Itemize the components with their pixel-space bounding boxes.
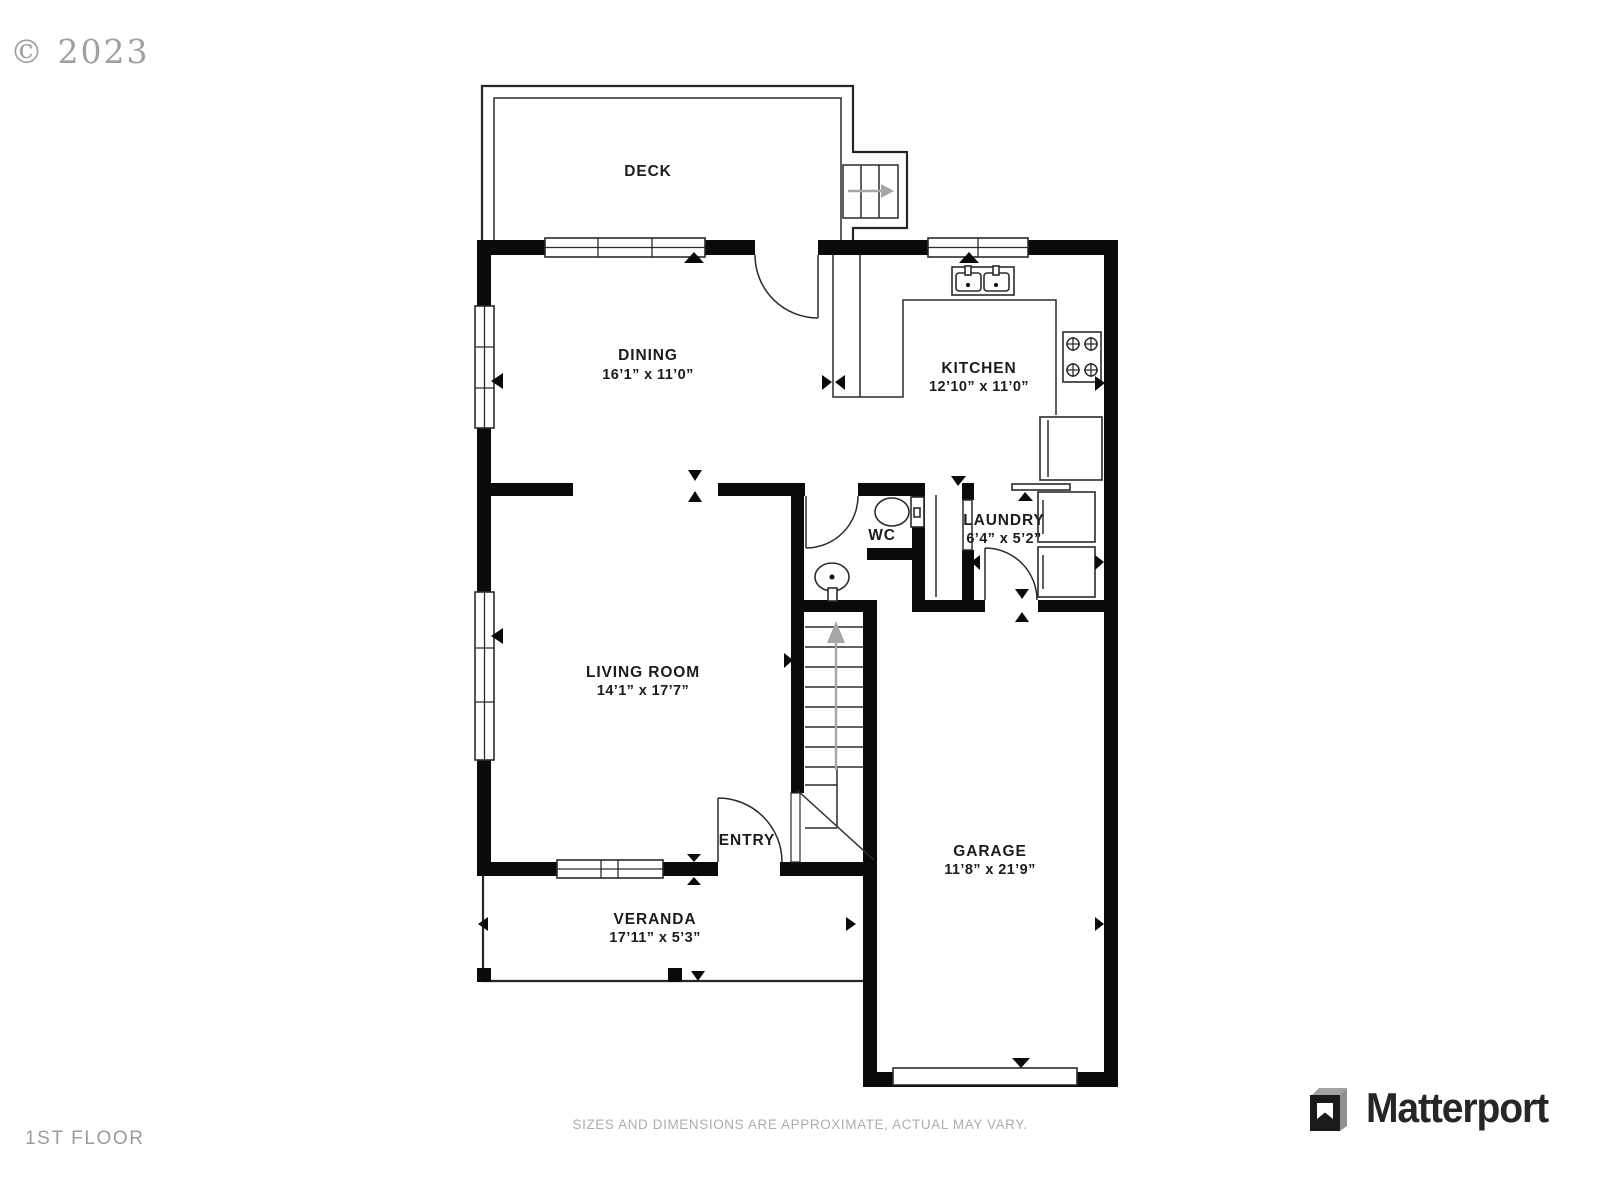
laundry-fixtures [1038, 492, 1095, 597]
matterport-logo: Matterport [1303, 1082, 1562, 1134]
wc-door [806, 496, 858, 548]
room-label-wc: WC [868, 527, 896, 544]
room-label-dining: DINING [618, 347, 678, 364]
entry-door [718, 798, 782, 862]
toilet [875, 497, 924, 527]
stair-railing [791, 793, 800, 862]
disclaimer-text: SIZES AND DIMENSIONS ARE APPROXIMATE, AC… [572, 1117, 1027, 1132]
walls [477, 240, 1118, 1087]
room-label-living-room: LIVING ROOM [586, 664, 700, 681]
room-dims-kitchen: 12’10” x 11’0” [929, 379, 1029, 395]
veranda-post [477, 968, 491, 982]
window-dining-top [545, 238, 705, 257]
counter-shelf [1012, 484, 1070, 490]
deck-door [755, 255, 818, 318]
floorplan-page: © 2023 [0, 0, 1600, 1200]
room-label-veranda: VERANDA [614, 911, 697, 928]
room-label-kitchen: KITCHEN [941, 360, 1016, 377]
floor-label: 1ST FLOOR [25, 1128, 145, 1150]
window-living-bottom [557, 860, 663, 878]
washer [1038, 492, 1095, 542]
stove [1063, 332, 1101, 382]
room-dims-living-room: 14’1” x 17’7” [597, 683, 689, 699]
laundry-door [985, 548, 1037, 600]
kitchen-sink [952, 266, 1014, 295]
room-dims-garage: 11’8” x 21’9” [944, 862, 1035, 878]
room-dims-dining: 16’1” x 11’0” [602, 367, 693, 383]
window-living-left [475, 592, 494, 760]
deck-outline [482, 86, 907, 240]
room-dims-veranda: 17’11” x 5’3” [609, 930, 700, 946]
window-dining-left [475, 306, 494, 428]
floorplan-drawing: DECK DINING 16’1” x 11’0” KITCHEN 12’10”… [0, 0, 1600, 1200]
veranda-post [668, 968, 682, 982]
window-kitchen-top [928, 238, 1028, 257]
matterport-wordmark: Matterport [1366, 1084, 1548, 1132]
matterport-icon [1303, 1083, 1353, 1133]
room-label-deck: DECK [624, 163, 672, 180]
room-dims-laundry: 6’4” x 5’2” [966, 531, 1041, 547]
garage-door [893, 1068, 1077, 1085]
wc-sink [815, 563, 849, 601]
dryer [1038, 547, 1095, 597]
room-label-garage: GARAGE [953, 843, 1026, 860]
room-label-entry: ENTRY [719, 832, 775, 849]
room-label-laundry: LAUNDRY [963, 512, 1045, 529]
refrigerator [1040, 417, 1102, 480]
